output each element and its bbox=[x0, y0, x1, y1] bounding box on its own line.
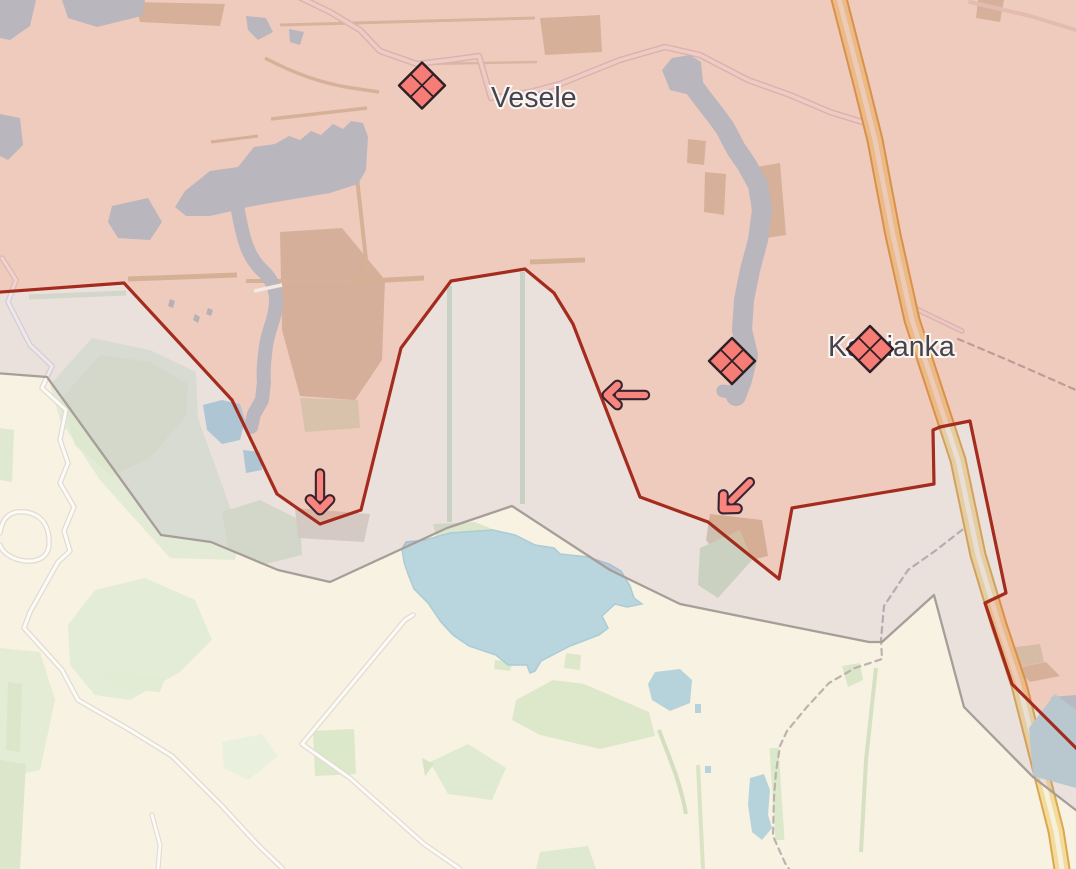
svg-text:Vesele: Vesele bbox=[491, 82, 577, 114]
